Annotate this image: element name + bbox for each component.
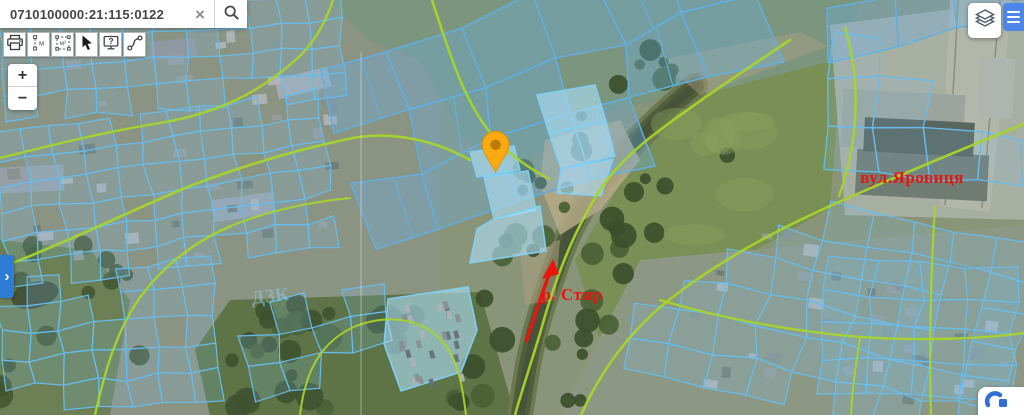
cursor-arrow-icon	[78, 34, 96, 55]
print-button[interactable]	[3, 32, 26, 57]
layers-icon	[974, 8, 996, 33]
hamburger-icon	[1007, 11, 1020, 13]
map-toolbar: м м²	[3, 32, 146, 57]
dzk-watermark: ДЗК	[250, 284, 290, 309]
measure-length-icon: м	[30, 34, 48, 55]
printer-icon	[6, 34, 24, 55]
chevron-right-icon: ›	[5, 268, 10, 285]
help-button[interactable]: ?	[99, 32, 122, 57]
map-viewport: ДЗК р. Стир вул.Яровиця ×	[0, 0, 1024, 415]
search-bar: ×	[0, 0, 247, 28]
route-button[interactable]	[123, 32, 146, 57]
svg-text:?: ?	[108, 36, 113, 46]
search-button[interactable]	[215, 0, 247, 28]
measure-length-button[interactable]: м	[27, 32, 50, 57]
svg-text:м: м	[39, 39, 44, 48]
clear-search-button[interactable]: ×	[186, 0, 214, 28]
brand-logo-icon	[984, 391, 1010, 415]
zoom-control: + −	[8, 64, 37, 110]
help-monitor-icon: ?	[102, 34, 120, 55]
zoom-out-button[interactable]: −	[8, 87, 37, 110]
street-label: вул.Яровиця	[860, 168, 964, 187]
river-label: р. Стир	[541, 285, 602, 304]
svg-text:м²: м²	[59, 40, 66, 47]
map-canvas[interactable]: ДЗК р. Стир вул.Яровиця	[0, 0, 1024, 415]
route-icon	[126, 34, 144, 55]
search-icon	[223, 4, 240, 24]
select-cursor-button[interactable]	[75, 32, 98, 57]
measure-area-button[interactable]: м²	[51, 32, 74, 57]
brand-logo[interactable]	[978, 387, 1024, 415]
layers-button[interactable]	[968, 3, 1001, 38]
menu-button[interactable]	[1003, 3, 1024, 31]
sidebar-expand-tab[interactable]: ›	[0, 255, 14, 298]
zoom-in-button[interactable]: +	[8, 64, 37, 87]
measure-area-icon: м²	[54, 34, 72, 55]
search-input[interactable]	[0, 0, 186, 28]
